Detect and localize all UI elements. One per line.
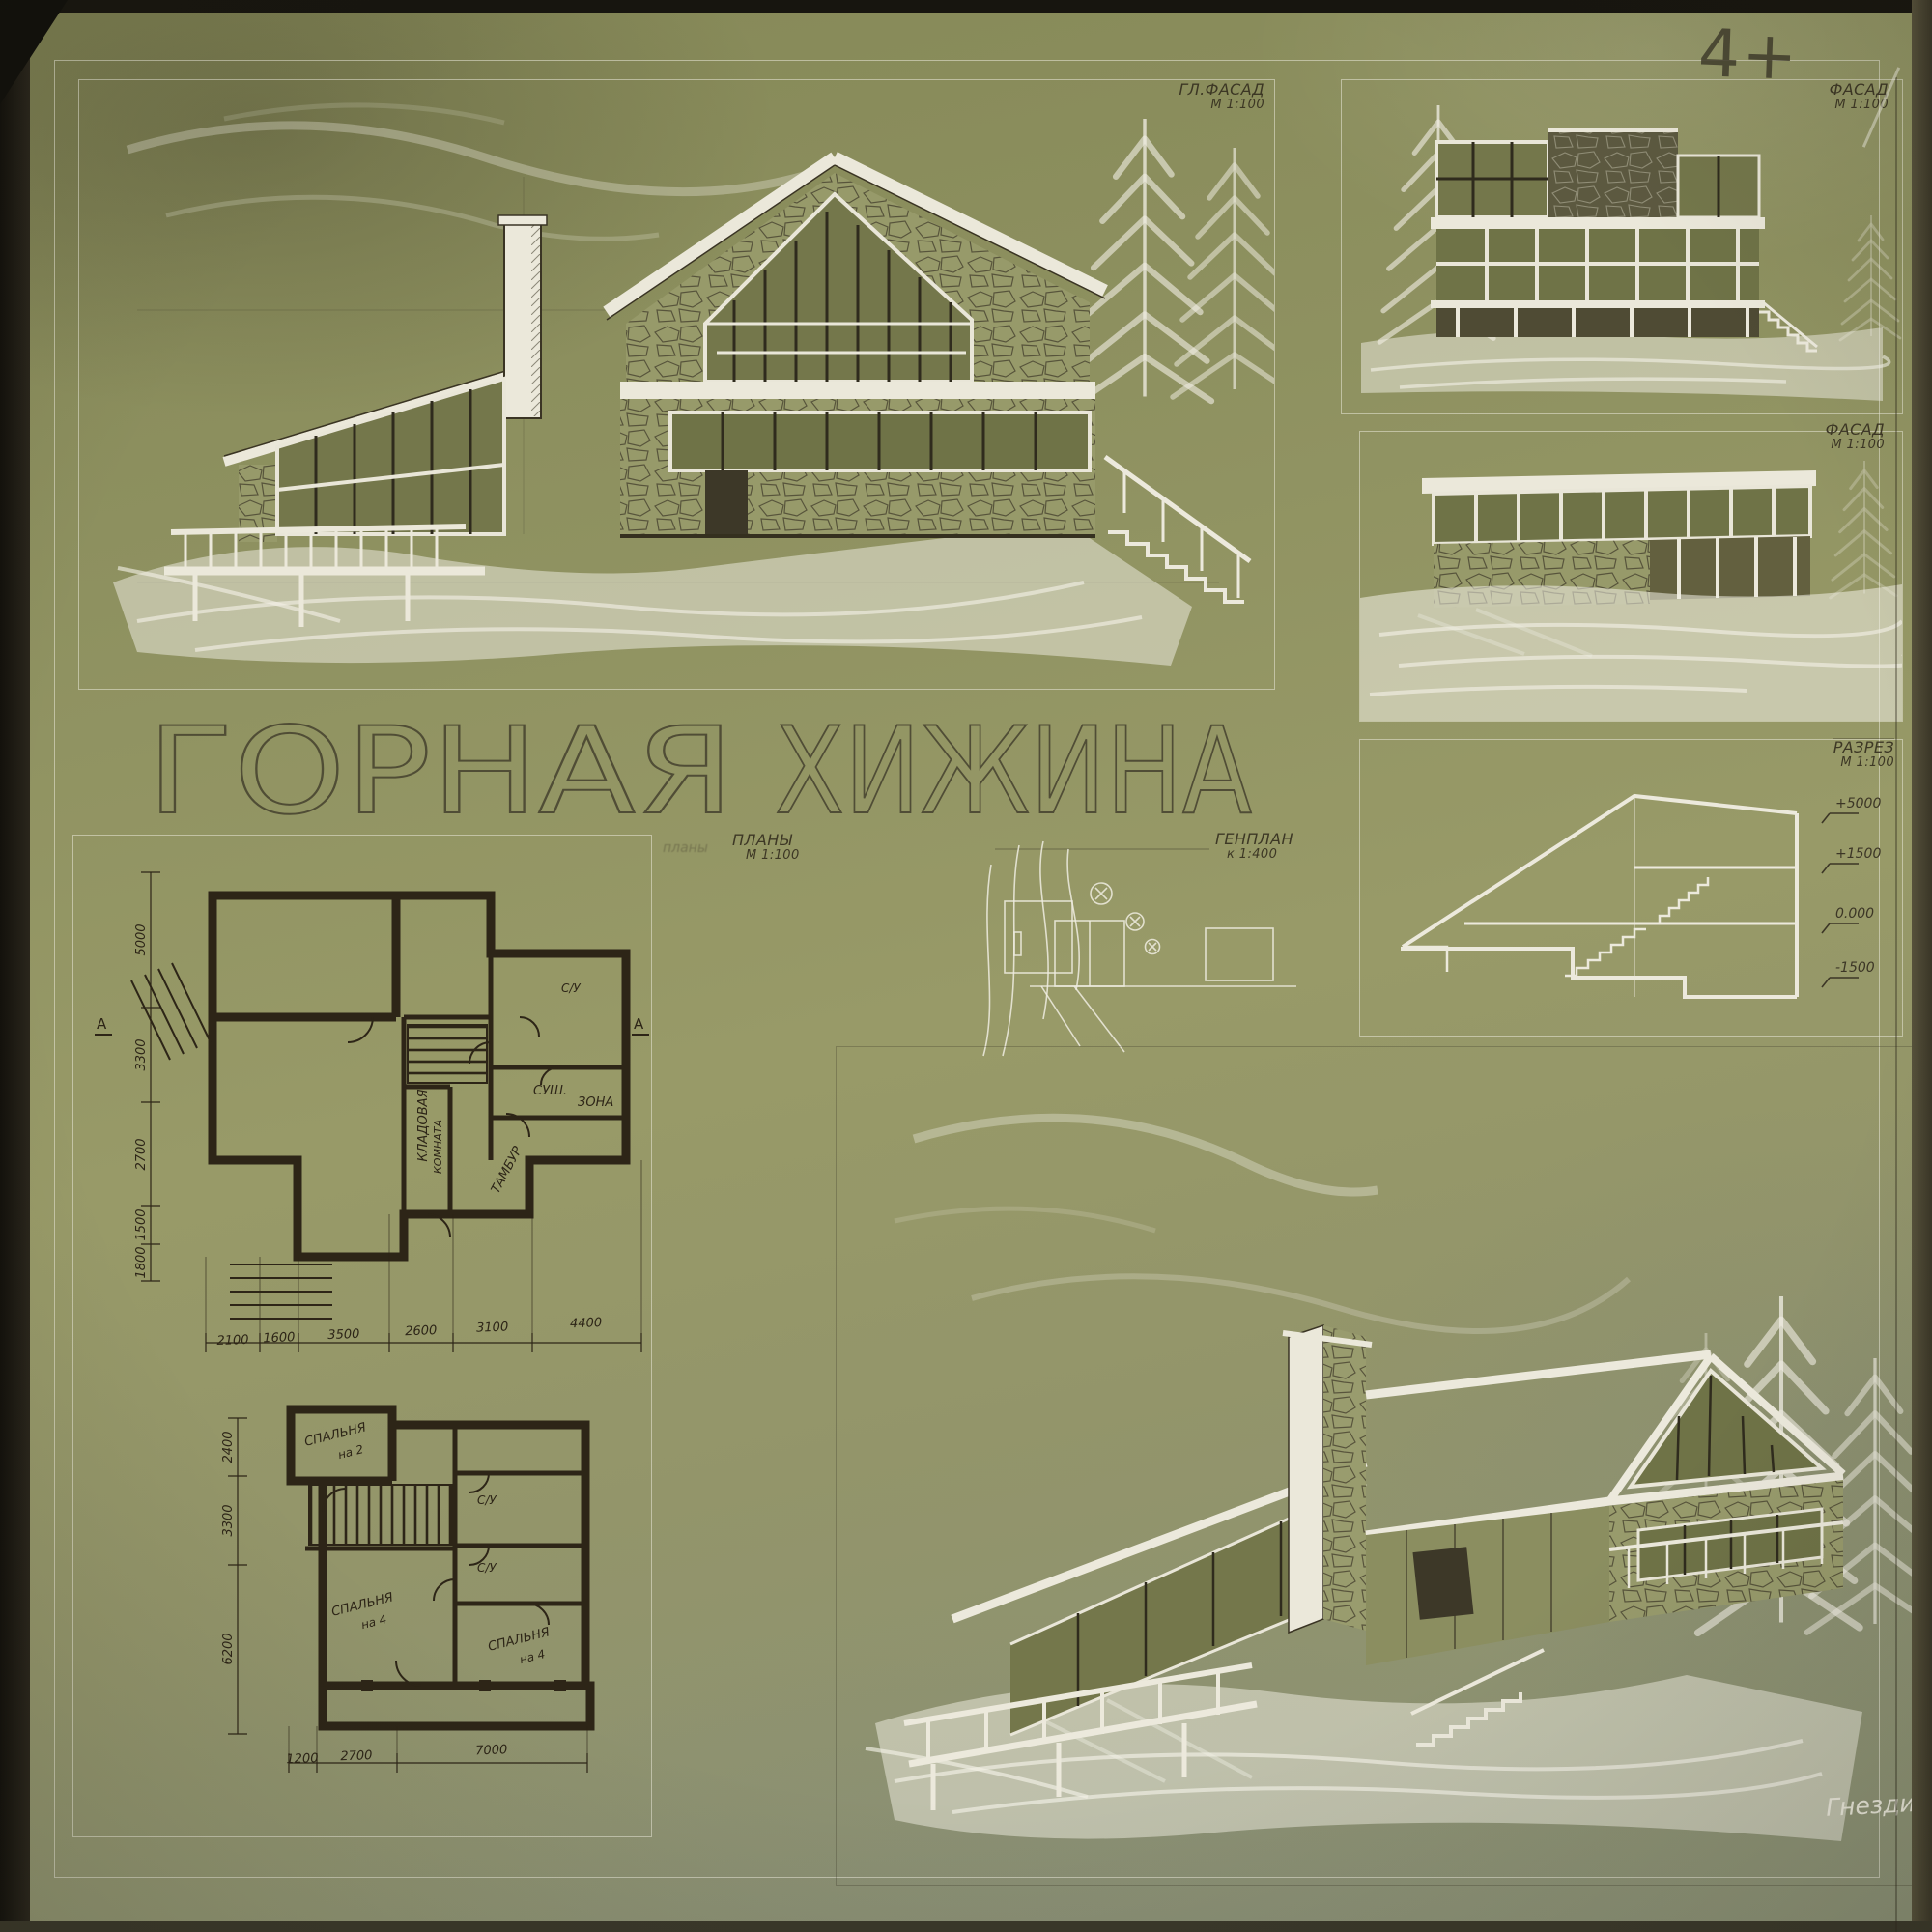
fascia-band <box>1431 217 1765 229</box>
section-mark-right: А <box>634 1015 644 1033</box>
rear-facade-label: ФАСАД М 1:100 <box>1826 422 1885 451</box>
rear-facade-title: ФАСАД <box>1826 422 1885 439</box>
dim: 6200 <box>221 1633 236 1664</box>
siteplan-scale: к 1:400 <box>1215 848 1293 862</box>
plans-drawing: КЛАДОВАЯ КОМНАТА ТАМБУР С/У СУШ. ЗОНА 21… <box>73 836 651 1836</box>
stair-flight-upper <box>1650 877 1708 923</box>
door <box>705 470 748 534</box>
room-bed4a-line2: на 4 <box>359 1612 387 1632</box>
glazing-band <box>1434 486 1810 544</box>
mark-minus1500: -1500 <box>1835 960 1875 976</box>
fir-tree-right-2 <box>1173 148 1274 397</box>
fir-tree-small-right <box>1840 215 1900 340</box>
dim: 3500 <box>327 1327 360 1343</box>
main-facade-drawing <box>79 80 1274 689</box>
side-facade-title: ФАСАД <box>1830 82 1889 99</box>
room-bed4b-line2: на 4 <box>518 1647 546 1666</box>
dim: 2600 <box>405 1323 438 1339</box>
dim: 7000 <box>475 1743 508 1758</box>
floor2-terrace <box>323 1686 590 1726</box>
grade-mark: 4+ <box>1697 15 1801 96</box>
panel-perspective <box>836 1046 1927 1886</box>
dim: 3300 <box>221 1504 236 1536</box>
door <box>1412 1547 1473 1619</box>
rear-facade-drawing <box>1360 432 1902 721</box>
room-wc1: С/У <box>477 1493 497 1507</box>
mark-5000: +5000 <box>1835 796 1881 811</box>
fir-tree-right-1 <box>1073 119 1211 406</box>
floor2-plan <box>291 1409 590 1726</box>
shed-wall <box>239 379 504 542</box>
floor1-dims-left: 5000 3300 2700 1500 1800 <box>134 872 160 1281</box>
floor2-dims-bottom: 1200 2700 7000 <box>286 1726 587 1773</box>
room-storage-line1: КЛАДОВАЯ <box>416 1089 431 1161</box>
board-title: ГОРНАЯ ХИЖИНА <box>145 718 1256 828</box>
deck-rail <box>1431 300 1765 308</box>
ridge-line <box>1366 1354 1711 1395</box>
under-shadow <box>1650 536 1810 600</box>
room-drying-line1: СУШ. <box>533 1084 567 1098</box>
chimney-lit-face <box>1289 1325 1323 1633</box>
snow-ground <box>1360 584 1902 721</box>
section-scale: М 1:100 <box>1833 756 1894 770</box>
panel-rear-facade: ФАСАД М 1:100 <box>1359 431 1903 722</box>
room-wc2: С/У <box>477 1561 497 1575</box>
section-lines <box>1403 796 1797 997</box>
siteplan-label: ГЕНПЛАН к 1:400 <box>1215 832 1293 861</box>
room-tambour: ТАМБУР <box>489 1144 526 1196</box>
elevation-marks: +5000 +1500 0.000 -1500 <box>1822 796 1881 987</box>
main-facade-title: ГЛ.ФАСАД <box>1179 82 1264 99</box>
panel-plans: КЛАДОВАЯ КОМНАТА ТАМБУР С/У СУШ. ЗОНА 21… <box>72 835 652 1837</box>
fir-tree-faint <box>1831 461 1896 598</box>
chalk-sky-streaks <box>128 105 813 239</box>
main-facade-scale: М 1:100 <box>1179 99 1264 112</box>
section-title: РАЗРЕЗ <box>1833 740 1894 756</box>
plans-label: ПЛАНЫ М 1:100 <box>732 833 800 862</box>
floor-band <box>620 382 1095 399</box>
plans-title: ПЛАНЫ <box>732 833 800 849</box>
section-drawing: +5000 +1500 0.000 -1500 <box>1360 740 1902 1036</box>
house-side <box>1431 130 1817 351</box>
perspective-drawing <box>837 1047 1926 1885</box>
side-facade-drawing <box>1342 80 1902 413</box>
building-3 <box>1206 928 1273 980</box>
main-facade-label: ГЛ.ФАСАД М 1:100 <box>1179 82 1264 111</box>
dim: 2700 <box>134 1138 149 1170</box>
dim: 2700 <box>340 1748 373 1764</box>
panel-side-facade: ФАСАД М 1:100 <box>1341 79 1903 414</box>
panel-siteplan: ГЕНПЛАН к 1:400 <box>927 828 1323 1060</box>
floor2-dims-left: 2400 3300 6200 <box>221 1418 247 1734</box>
title-word-2: ХИЖИНА <box>775 718 1252 828</box>
dim: 2100 <box>216 1333 249 1349</box>
dim: 1800 <box>134 1246 149 1278</box>
plans-scale: М 1:100 <box>732 849 800 863</box>
room-storage-line2: КОМНАТА <box>432 1120 444 1174</box>
floor1-dims-bottom: 2100 1600 3500 2600 3100 4400 <box>206 1160 641 1352</box>
gable-wall <box>626 173 1090 382</box>
paper-sheet: ГЛ.ФАСАД М 1:100 <box>29 12 1915 1928</box>
dim: 3100 <box>476 1321 509 1336</box>
section-mark-left: А <box>97 1015 107 1033</box>
plans-pencil-note: планы <box>663 840 708 856</box>
room-drying-line2: ЗОНА <box>578 1095 613 1110</box>
siteplan-drawing <box>927 828 1323 1060</box>
photo-of-drawing-board: ГЛ.ФАСАД М 1:100 <box>0 0 1932 1932</box>
dim: 1600 <box>263 1330 296 1346</box>
snow-ground <box>1361 327 1889 401</box>
side-facade-scale: М 1:100 <box>1830 99 1889 112</box>
lower-wall <box>620 399 1095 536</box>
dim: 3300 <box>134 1038 149 1070</box>
dim: 1500 <box>134 1208 149 1240</box>
dim: 5000 <box>134 923 149 955</box>
rear-facade-scale: М 1:100 <box>1826 439 1885 452</box>
dim: 2400 <box>221 1431 236 1463</box>
panel-main-facade: ГЛ.ФАСАД М 1:100 <box>78 79 1275 690</box>
dim: 1200 <box>286 1751 319 1767</box>
under-deck-shadow <box>1436 308 1759 337</box>
room-bed2-line2: на 2 <box>336 1442 364 1462</box>
dim: 4400 <box>570 1316 603 1331</box>
panel-section: +5000 +1500 0.000 -1500 РАЗРЕЗ М 1:100 <box>1359 739 1903 1037</box>
photo-edge-left <box>0 0 30 1932</box>
siteplan-title: ГЕНПЛАН <box>1215 832 1293 848</box>
mark-1500: +1500 <box>1835 846 1881 862</box>
chalk-streaks <box>895 1118 1629 1331</box>
siteplan-lines <box>983 841 1296 1056</box>
title-word-1: ГОРНАЯ <box>147 718 734 828</box>
side-facade-label: ФАСАД М 1:100 <box>1830 82 1889 111</box>
site-paths <box>1041 986 1124 1052</box>
floor1-plan <box>131 895 626 1319</box>
section-label: РАЗРЕЗ М 1:100 <box>1833 738 1894 769</box>
mark-0000: 0.000 <box>1835 906 1874 922</box>
room-wc: С/У <box>561 981 581 995</box>
